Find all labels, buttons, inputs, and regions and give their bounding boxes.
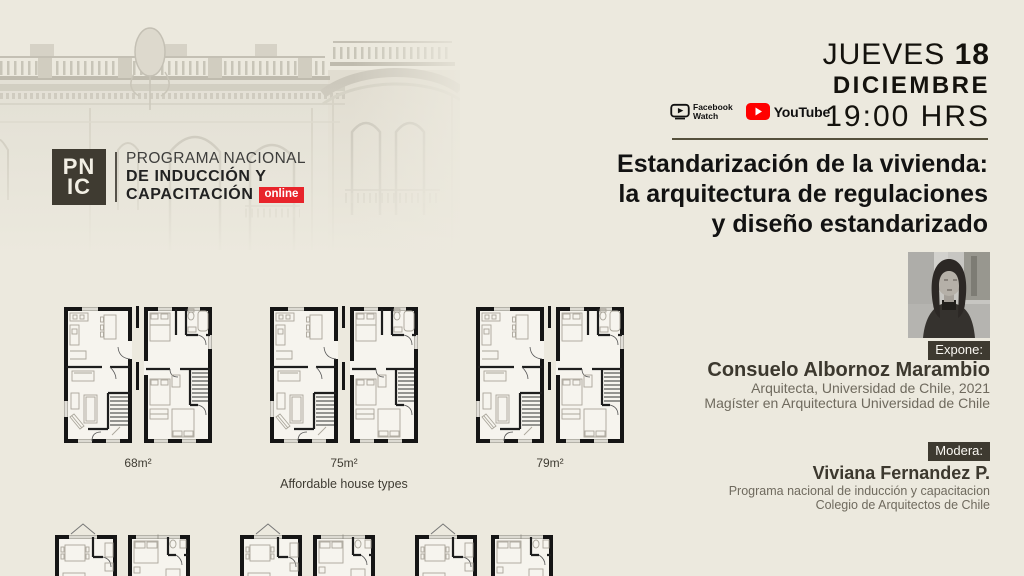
event-title: Estandarización de la vivienda: la arqui… xyxy=(617,149,988,239)
youtube-label: YouTube xyxy=(774,104,830,120)
facebook-watch-logo: Facebook Watch xyxy=(670,103,733,121)
logo-divider xyxy=(115,152,117,202)
floorplan-bottom-3a xyxy=(413,521,479,576)
speaker-credential-1: Arquitecta, Universidad de Chile, 2021 xyxy=(704,381,990,396)
floorplan-bottom-2a xyxy=(238,521,304,576)
floorplan-79-upper xyxy=(554,305,626,445)
event-poster: PN IC PROGRAMA NACIONAL DE INDUCCIÓN Y C… xyxy=(0,0,1024,576)
party-wall xyxy=(548,362,551,390)
moderator-role-badge: Modera: xyxy=(928,442,990,461)
pnic-logo: PN IC PROGRAMA NACIONAL DE INDUCCIÓN Y C… xyxy=(52,149,306,205)
party-wall xyxy=(136,306,139,328)
party-wall xyxy=(342,306,345,328)
floorplan-bottom-1a xyxy=(53,521,119,576)
online-badge: online xyxy=(259,187,305,204)
plan-area-label-75: 75m² xyxy=(304,456,384,470)
floorplan-75-ground xyxy=(268,305,340,445)
moderator-affiliation-2: Colegio de Arquitectos de Chile xyxy=(729,498,990,512)
speaker-credential-2: Magíster en Arquitectura Universidad de … xyxy=(704,396,990,411)
event-month: DICIEMBRE xyxy=(823,74,990,98)
floorplan-79-ground xyxy=(474,305,546,445)
floorplan-bottom-1b xyxy=(126,521,192,576)
event-title-line3: y diseño estandarizado xyxy=(617,209,988,239)
event-day-label: JUEVES xyxy=(823,38,946,71)
party-wall xyxy=(548,306,551,328)
speaker-role-badge: Expone: xyxy=(928,341,990,360)
party-wall xyxy=(342,362,345,390)
pnic-logo-mark: PN IC xyxy=(52,149,106,205)
plan-area-label-79: 79m² xyxy=(510,456,590,470)
party-wall xyxy=(136,362,139,390)
event-title-line2: la arquitectura de regulaciones xyxy=(617,179,988,209)
logo-line3: CAPACITACIÓN xyxy=(126,187,254,203)
speaker-photo xyxy=(908,252,990,338)
moderator-name: Viviana Fernandez P. xyxy=(813,463,990,484)
floorplan-68-upper xyxy=(142,305,214,445)
speaker-name: Consuelo Albornoz Marambio xyxy=(707,359,990,382)
facebook-watch-icon xyxy=(670,103,690,120)
pnic-acronym-bottom: IC xyxy=(67,177,91,197)
header-divider-line xyxy=(672,138,988,140)
moderator-affiliation-1: Programa nacional de inducción y capacit… xyxy=(729,484,990,498)
floorplan-75-upper xyxy=(348,305,420,445)
building-facade-image xyxy=(0,0,460,250)
event-time: 19:00 HRS xyxy=(823,102,990,132)
floorplan-bottom-2b xyxy=(311,521,377,576)
logo-line1: PROGRAMA NACIONAL xyxy=(126,151,306,167)
floorplan-68-ground xyxy=(62,305,134,445)
facebook-watch-label-2: Watch xyxy=(693,111,718,121)
plans-caption: Affordable house types xyxy=(244,477,444,491)
moderator-affiliations: Programa nacional de inducción y capacit… xyxy=(729,484,990,512)
logo-line2: DE INDUCCIÓN Y xyxy=(126,169,306,185)
youtube-logo: YouTube xyxy=(746,103,830,120)
event-datetime: JUEVES 18 DICIEMBRE 19:00 HRS xyxy=(823,40,990,132)
speaker-credentials: Arquitecta, Universidad de Chile, 2021 M… xyxy=(704,381,990,411)
youtube-play-icon xyxy=(746,103,770,120)
floorplan-bottom-3b xyxy=(489,521,555,576)
event-title-line1: Estandarización de la vivienda: xyxy=(617,149,988,179)
plan-area-label-68: 68m² xyxy=(98,456,178,470)
streaming-platforms: Facebook Watch YouTube xyxy=(670,103,830,121)
event-day-number: 18 xyxy=(955,38,990,71)
